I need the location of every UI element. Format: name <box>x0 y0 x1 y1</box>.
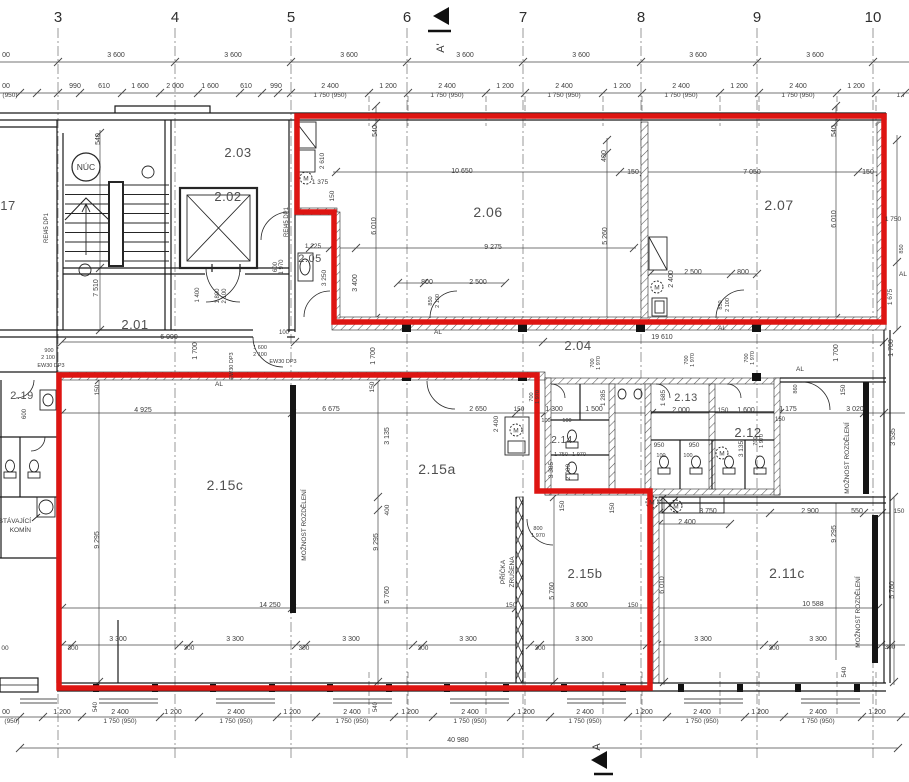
dimension-label: 3 300 <box>694 636 712 643</box>
dimension-label: 3 750 <box>699 508 717 515</box>
room-number-label: 2.15b <box>567 566 602 581</box>
dimension-label: 950 <box>689 442 700 449</box>
dimension-label: 540 <box>372 125 379 137</box>
dimension-label: 5 760 <box>549 582 556 600</box>
annotation-label: KOMÍN <box>10 525 32 534</box>
dimension-label: 4 925 <box>134 407 152 414</box>
dimension-label: 3 600 <box>689 52 707 59</box>
dimension-label: 2 500 <box>684 269 702 276</box>
dimension-label: 600 <box>22 408 28 419</box>
grid-number: 3 <box>54 9 62 26</box>
dimension-label: 3 600 <box>340 52 358 59</box>
room-number-label: 2.14 <box>551 435 572 446</box>
annotation-label: EW30 DP3 <box>229 352 235 379</box>
annotation-label: MOŽNOST ROZDĚLENÍ <box>853 576 862 648</box>
dimension-label: 2 400 <box>693 709 711 716</box>
dimension-label: 1 970 <box>596 356 602 370</box>
dimension-label: 150 <box>840 384 847 395</box>
dimension-label: 2 400 <box>461 709 479 716</box>
dimension-label: 400 <box>601 150 608 162</box>
dimension-label: 1 600 <box>737 407 755 414</box>
dimension-label: 2 400 <box>111 709 129 716</box>
dimension-label: 1 750 (950) <box>801 718 834 725</box>
dimension-label: 300 <box>68 645 79 652</box>
dimension-label: 14 250 <box>259 602 281 609</box>
dimension-label: 1 200 <box>401 709 419 716</box>
dimension-label: 150 <box>718 407 729 414</box>
dimension-label: 300 <box>184 645 195 652</box>
dimension-label: 540 <box>841 666 848 677</box>
dimension-label: 3 385 <box>548 461 555 478</box>
dimension-label: 150 <box>609 502 616 513</box>
dimension-label: 100 <box>279 330 290 336</box>
dimension-label: 550 <box>851 508 863 515</box>
room-number-label: 2.04 <box>564 338 591 353</box>
dimension-label: 2 100 <box>435 294 441 308</box>
dimension-label: 1 200 <box>635 709 653 716</box>
dimension-label: 3 300 <box>342 636 360 643</box>
dimension-label: 2 100 <box>253 352 267 358</box>
dimension-label: 1 500 <box>585 406 603 413</box>
dimension-label: 800 <box>737 269 749 276</box>
dimension-label: 1 750 (950) <box>547 92 580 99</box>
dimension-label: 1 970 <box>531 533 545 539</box>
floor-plan-drawing: 345678910003 6003 6003 6003 6003 6003 60… <box>0 0 909 782</box>
dimension-label: 1 750 (950) <box>430 92 463 99</box>
dimension-label: 3 300 <box>109 636 127 643</box>
motor-symbol-label: M <box>513 428 518 435</box>
room-number-label: 2.13 <box>674 392 697 404</box>
room-number-label: 2.11c <box>769 565 805 581</box>
annotation-label: EW30 DP3 <box>37 363 64 369</box>
room-number-label: 2.12 <box>734 425 761 440</box>
dimension-label: 1 970 <box>690 353 696 367</box>
motor-symbol-label: M <box>649 500 654 507</box>
dimension-label: 860 <box>793 384 799 393</box>
dimension-label: 900 <box>44 348 53 354</box>
dimension-label: 3 135 <box>384 427 391 445</box>
dimension-label: 1 750 <box>554 452 568 458</box>
dimension-label: 850 <box>899 244 905 253</box>
dimension-label: 1 800 <box>215 288 221 304</box>
dimension-label: 1 200 <box>283 709 301 716</box>
dimension-label: 6 675 <box>322 406 340 413</box>
dimension-label: 1 970 <box>572 452 586 458</box>
grid-number: 8 <box>637 9 645 26</box>
section-arrow-bottom-icon <box>591 751 607 769</box>
dimension-label: 40 980 <box>447 737 469 744</box>
dimension-label: 100 <box>656 453 665 459</box>
dimension-label: 2 400 <box>493 415 500 432</box>
dimension-label: 00 <box>2 709 10 716</box>
dimension-label: 1 200 <box>517 709 535 716</box>
room-number-label: 2.01 <box>121 317 148 332</box>
dimension-label: 1 675 <box>887 288 894 305</box>
room-number-label: 2.05 <box>298 253 321 265</box>
dimension-label: 9 295 <box>373 533 380 551</box>
dimension-label: 1 700 <box>370 347 377 365</box>
dimension-label: 2 000 <box>565 463 572 480</box>
annotation-label: AL <box>434 329 442 336</box>
motor-symbol-label: M <box>654 285 659 292</box>
annotation-label: ZRUŠENA <box>507 556 516 588</box>
dimension-label: 540 <box>95 133 102 145</box>
dimension-label: 3 135 <box>738 440 745 457</box>
dimension-label: 2 000 <box>166 83 184 90</box>
dimension-label: 800 <box>533 526 542 532</box>
dimension-label: 9 275 <box>484 244 502 251</box>
dimension-label: 3 300 <box>809 636 827 643</box>
dimension-label: 2 100 <box>41 355 55 361</box>
dimension-label: 150 <box>775 417 786 423</box>
dimension-label: 800 <box>421 279 433 286</box>
dimension-label: (950) <box>2 92 17 99</box>
grid-number: 4 <box>171 9 179 26</box>
dimension-label: 3 300 <box>459 636 477 643</box>
dimension-label: 150 <box>506 602 517 609</box>
annotation-label: REI45 DP1 <box>44 212 50 243</box>
dimension-label: 150 <box>514 406 525 413</box>
annotation-label: MOŽNOST ROZDĚLENÍ <box>299 489 308 561</box>
dimension-label: 2 650 <box>469 406 487 413</box>
dimension-label: 3 600 <box>107 52 125 59</box>
nuc-escape-route-label: NÚC <box>77 162 95 172</box>
dimension-label: 9 295 <box>94 531 101 549</box>
dimension-label: 2 400 <box>576 709 594 716</box>
dimension-label: 6 010 <box>659 576 666 594</box>
dimension-label: 1 750 (950) <box>568 718 601 725</box>
dimension-label: 2 400 <box>227 709 245 716</box>
dimension-label: 3 600 <box>572 52 590 59</box>
dimension-label: 1 200 <box>751 709 769 716</box>
dimension-label: 610 <box>240 83 252 90</box>
dimension-label: 1 750 (950) <box>781 92 814 99</box>
annotation-label: EW30 DP3 <box>269 359 296 365</box>
dimension-label: 1 200 <box>847 83 865 90</box>
dimension-label: (950) <box>4 718 19 725</box>
dimension-label: 2 400 <box>555 83 573 90</box>
dimension-label: 3 600 <box>570 602 588 609</box>
floor-plan-sheet: 345678910003 6003 6003 6003 6003 6003 60… <box>0 0 909 782</box>
dimension-label: 3 020 <box>846 406 864 413</box>
dimension-label: 6 010 <box>371 217 378 235</box>
dimension-label: 1 750 (950) <box>313 92 346 99</box>
dimension-label: 540 <box>831 125 838 137</box>
dimension-label: 400 <box>384 504 391 515</box>
dimension-label: 6 010 <box>831 210 838 228</box>
room-number-label: 2.19 <box>10 390 33 402</box>
section-marker-top-label: A' <box>435 43 447 52</box>
dimension-label: 610 <box>98 83 110 90</box>
section-marker-bottom-label: A <box>591 743 603 751</box>
dimension-label: 850 <box>428 296 434 305</box>
dimension-label: 990 <box>270 83 282 90</box>
dimension-label: 1 175 <box>779 406 797 413</box>
highlight-outlines <box>59 116 884 688</box>
dimension-label: 7 050 <box>743 169 761 176</box>
room-number-label: 2.03 <box>224 145 251 160</box>
dimension-label: 10 650 <box>451 168 473 175</box>
dimension-label: 1 685 <box>660 389 667 406</box>
dimension-label: 2 400 <box>668 270 675 288</box>
annotation-label: AL <box>215 381 223 388</box>
dimension-label: 1 600 <box>253 345 267 351</box>
dimension-label: 2 400 <box>672 83 690 90</box>
dimension-label: 1 600 <box>201 83 219 90</box>
dimension-label: 300 <box>418 645 429 652</box>
dimension-label: 5 760 <box>889 581 896 599</box>
dimension-label: 2 610 <box>319 152 326 169</box>
dimension-label: 5 760 <box>384 586 391 604</box>
annotation-label: AL <box>718 325 726 332</box>
room-number-label: 2.02 <box>214 189 241 204</box>
motor-symbol-label: M <box>673 504 678 511</box>
dimension-label: 150 <box>559 500 566 511</box>
dimension-label: 2 100 <box>222 288 228 304</box>
fixtures <box>4 122 830 545</box>
dimension-label: 3 600 <box>224 52 242 59</box>
highlight-outline-top <box>297 116 884 322</box>
dimension-label: 1 225 <box>305 243 322 250</box>
dimension-label: 300 <box>299 645 310 652</box>
dimension-label: 00 <box>2 52 10 59</box>
room-number-label: 2.07 <box>764 197 793 213</box>
room-number-label: 2.15c <box>207 477 244 493</box>
grid-number: 10 <box>865 9 882 26</box>
dimension-label: 540 <box>93 701 99 712</box>
dimension-label: 150 <box>627 169 639 176</box>
dimension-label: 2 400 <box>438 83 456 90</box>
dimension-label: 1 200 <box>613 83 631 90</box>
dimension-label: 2 500 <box>469 279 487 286</box>
dimension-label: 00 <box>2 83 10 90</box>
grid-axes <box>58 28 876 758</box>
dimension-label: 9 295 <box>831 525 838 543</box>
annotation-label: STÁVAJÍCÍ <box>0 516 31 525</box>
dimension-label: 150 <box>628 602 639 609</box>
grid-number: 9 <box>753 9 761 26</box>
dimension-label: 150 <box>894 508 905 515</box>
section-arrow-top-icon <box>433 7 449 25</box>
dimension-label: 1 7 <box>896 92 905 99</box>
room-number-label: 17 <box>0 198 15 213</box>
walls <box>0 106 890 703</box>
dimension-label: 1 970 <box>279 259 285 275</box>
dimension-label: 2 900 <box>801 508 819 515</box>
dimension-label: 3 300 <box>226 636 244 643</box>
dimension-label: 00 <box>1 645 9 652</box>
dimension-label: 3 250 <box>321 269 328 286</box>
dimension-label: 1 200 <box>496 83 514 90</box>
dimension-label: 2 400 <box>321 83 339 90</box>
dimension-label: 19 610 <box>651 334 673 341</box>
dimension-label: 6 990 <box>160 334 178 341</box>
dimension-label: 2 400 <box>343 709 361 716</box>
dimension-label: 7 510 <box>93 279 100 297</box>
grid-number: 7 <box>519 9 527 26</box>
dimension-label: 2 400 <box>789 83 807 90</box>
dimension-label: 1 750 (950) <box>335 718 368 725</box>
dimension-label: 2 400 <box>809 709 827 716</box>
dimension-label: 100 <box>562 418 571 424</box>
dimension-label: 150 <box>94 384 101 395</box>
dimension-label: 1 200 <box>730 83 748 90</box>
room-number-label: 2.15a <box>418 461 456 477</box>
dimension-label: 1 970 <box>750 351 756 365</box>
dimension-label: 3 400 <box>352 274 359 292</box>
dimension-label: 950 <box>654 442 665 449</box>
dimension-label: 150 <box>862 169 874 176</box>
grid-number: 5 <box>287 9 295 26</box>
dimension-label: 100 <box>541 418 550 424</box>
dimension-label: 2 000 <box>672 407 690 414</box>
dimension-label: 1 200 <box>53 709 71 716</box>
dimension-label: 300 <box>885 644 896 651</box>
dimension-label: 2 100 <box>725 298 731 312</box>
dimension-label: 1 200 <box>164 709 182 716</box>
annotation-label: MOŽNOST ROZDĚLENÍ <box>842 422 851 494</box>
dimension-label: 3 600 <box>806 52 824 59</box>
motor-symbol-label: M <box>719 451 724 458</box>
dimension-label: 1 750 (950) <box>103 718 136 725</box>
dimension-label: 1 200 <box>379 83 397 90</box>
grid-number: 6 <box>403 9 411 26</box>
dimension-label: 1 300 <box>545 406 563 413</box>
dimension-label: 150 <box>329 190 336 201</box>
dimension-label: 100 <box>683 453 692 459</box>
dimension-label: 300 <box>769 645 780 652</box>
room-number-label: 2.06 <box>473 204 502 220</box>
dimension-label: 1 285 <box>600 389 607 406</box>
dimension-label: 1 600 <box>131 83 149 90</box>
dimension-label: 1 750 (950) <box>685 718 718 725</box>
dimension-label: 1 750 (950) <box>219 718 252 725</box>
annotation-label: AL <box>796 366 804 373</box>
dimension-label: 1 750 (950) <box>664 92 697 99</box>
dimension-label: 1 750 (950) <box>453 718 486 725</box>
dimension-label: 1 750 <box>885 216 902 223</box>
annotation-label: AL <box>899 271 907 278</box>
annotation-label: PŘÍČKA <box>498 559 507 584</box>
dimension-label: 540 <box>373 701 379 712</box>
dimension-label: 1 400 <box>195 287 201 303</box>
dimension-label: 2 400 <box>678 519 696 526</box>
dimension-label: 3 300 <box>575 636 593 643</box>
dimension-label: 10 588 <box>802 601 824 608</box>
dimension-label: 1 700 <box>833 344 840 362</box>
motor-symbol-label: M <box>303 176 308 183</box>
dimension-label: 3 535 <box>890 428 897 446</box>
dimension-label: 300 <box>535 645 546 652</box>
dimension-label: 3 600 <box>456 52 474 59</box>
dimension-label: 1 970 <box>535 390 541 404</box>
annotation-label: REI45 DP1 <box>284 206 290 237</box>
dimension-label: 850 <box>718 300 724 309</box>
dimension-label: 5 260 <box>602 227 609 245</box>
dimension-label: 990 <box>69 83 81 90</box>
dimension-label: 1 700 <box>888 339 895 357</box>
dimension-label: 150 <box>369 381 376 392</box>
dimension-label: 1 200 <box>868 709 886 716</box>
dimension-label: 1 375 <box>312 179 329 186</box>
dimension-label: 1 700 <box>192 342 199 360</box>
